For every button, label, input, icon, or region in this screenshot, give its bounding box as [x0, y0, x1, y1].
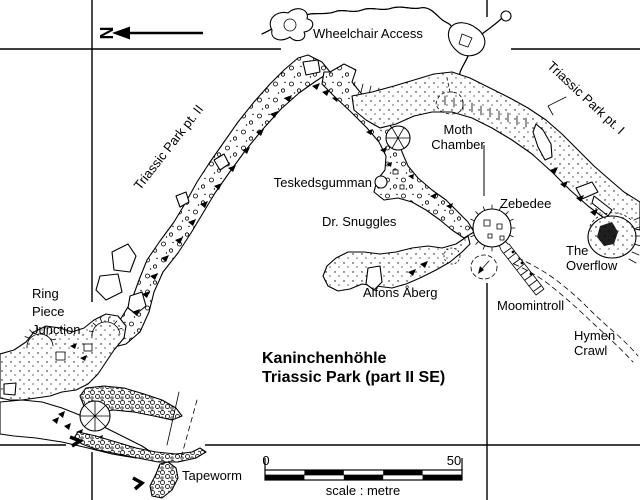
label-zebedee: Zebedee [500, 196, 551, 211]
label-the-overflow-line1: The [566, 243, 588, 258]
label-tapeworm: Tapeworm [182, 468, 242, 483]
cave-survey-map: N [0, 0, 640, 500]
label-moth-chamber-line1: Moth [444, 122, 473, 137]
label-ring-piece-junction-line1: Ring [32, 286, 59, 301]
label-ring-piece-junction-line3: Junction [32, 322, 80, 337]
scale-end-label: 50 [447, 453, 461, 468]
scale-bar: 0 50 scale : metre [262, 453, 462, 498]
passage-zebedee [469, 205, 515, 251]
cave-map-svg: N [0, 0, 640, 500]
cave-passages [0, 7, 640, 498]
label-wheelchair-access: Wheelchair Access [313, 26, 423, 41]
label-dr-snuggles: Dr. Snuggles [322, 214, 397, 229]
label-the-overflow-line2: Overflow [566, 258, 618, 273]
label-moomintroll: Moomintroll [497, 298, 564, 313]
north-arrow: N [96, 27, 203, 40]
passage-moomintroll [471, 244, 544, 295]
label-triassic-park-1: Triassic Park pt. I [544, 58, 627, 137]
label-hymen-crawl-line2: Crawl [574, 343, 607, 358]
label-moth-chamber-line2: Chamber [431, 137, 485, 152]
label-alfons-aberg: Alfons Åberg [363, 285, 437, 300]
scale-caption: scale : metre [326, 483, 400, 498]
map-title: Kaninchenhöhle Triassic Park (part II SE… [262, 350, 445, 386]
label-triassic-park-2: Triassic Park pt. II [131, 102, 207, 193]
map-title-line2: Triassic Park (part II SE) [262, 369, 445, 386]
label-hymen-crawl-line1: Hymen [574, 328, 615, 343]
passage-alfons-aberg [323, 236, 470, 291]
label-teskedsgumman: Teskedsgumman [274, 175, 372, 190]
map-title-line1: Kaninchenhöhle [262, 350, 387, 367]
scale-bar-checker [265, 470, 462, 480]
scale-start-label: 0 [262, 453, 269, 468]
label-ring-piece-junction-line2: Piece [32, 304, 65, 319]
